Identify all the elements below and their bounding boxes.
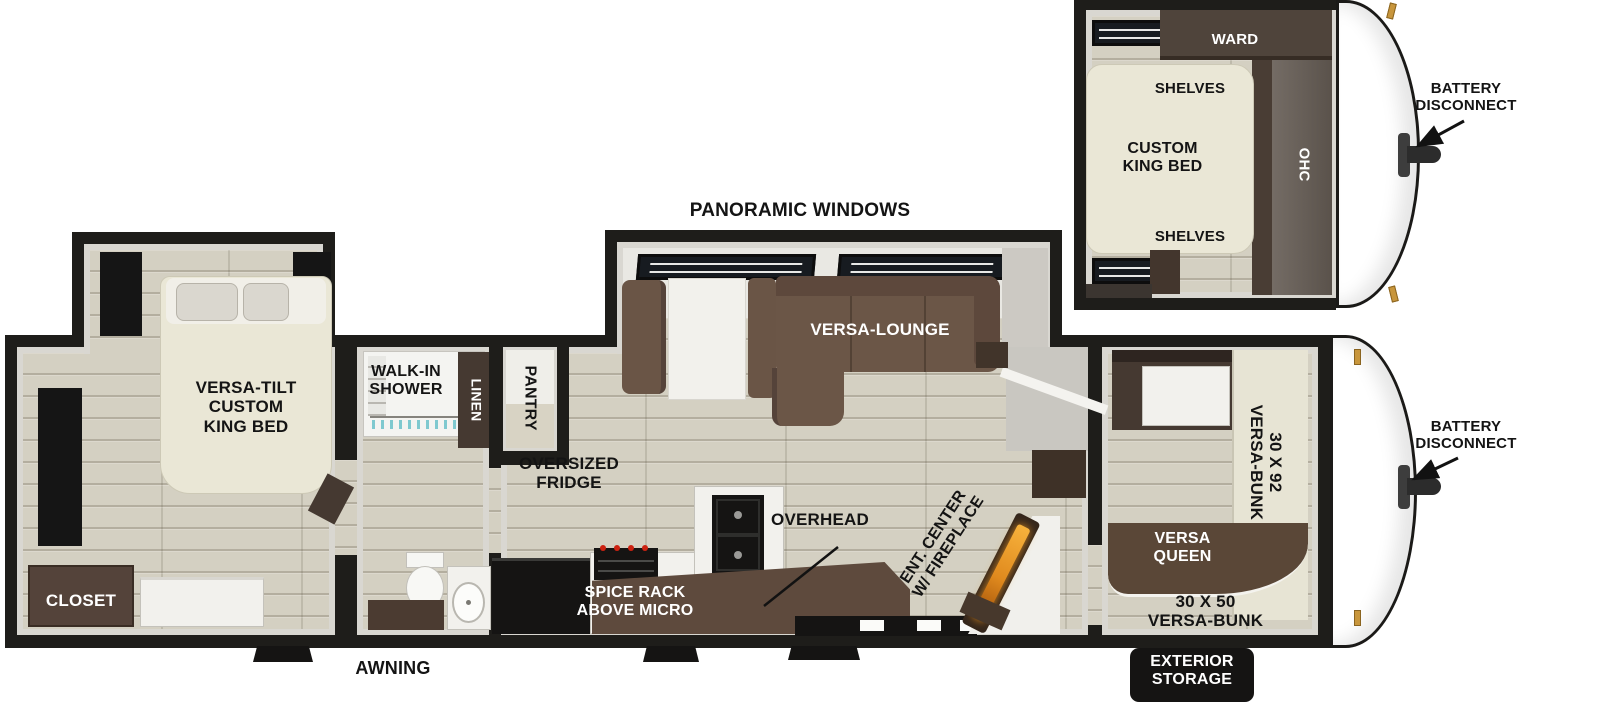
- bunk92-label: 30 X 92 VERSA-BUNK: [1247, 404, 1286, 519]
- battery-hitch-icon: [1407, 478, 1441, 495]
- sink-drain: [466, 600, 471, 605]
- linen-label: LINEN: [467, 378, 483, 421]
- ward-label: WARD: [1190, 31, 1280, 48]
- versa-tilt-king-label: VERSA-TILT CUSTOM KING BED: [168, 378, 324, 436]
- awning-label: AWNING: [338, 658, 448, 679]
- bunk92-label-wrap: 30 X 92 VERSA-BUNK: [1171, 436, 1361, 488]
- bunk-panel: [1142, 366, 1230, 426]
- hinge-icon: [1354, 349, 1361, 365]
- stabilizer-foot: [253, 646, 313, 662]
- oversized-fridge-label: OVERSIZED FRIDGE: [498, 454, 640, 493]
- custom-king-label: CUSTOM KING BED: [1100, 140, 1225, 176]
- closet-label: CLOSET: [30, 591, 132, 610]
- tv-cabinet: [1032, 450, 1086, 498]
- dresser: [140, 577, 264, 627]
- spice-rack-label: SPICE RACK ABOVE MICRO: [540, 584, 730, 620]
- sofa-chaise: [772, 368, 844, 426]
- lounge-chair: [622, 280, 666, 394]
- ohc-label-wrap: OHC: [1273, 134, 1335, 196]
- stabilizer-foot: [788, 646, 860, 660]
- slide-end-wall: [1002, 248, 1048, 348]
- island-cabinet: [712, 495, 764, 575]
- lounge-table: [668, 278, 746, 400]
- hinge-icon: [1354, 610, 1361, 626]
- battery-arrow-front: [1418, 121, 1464, 146]
- pantry-label-wrap: PANTRY: [482, 350, 578, 446]
- versa-queen-label: VERSA QUEEN: [1135, 530, 1230, 566]
- pantry-label: PANTRY: [521, 365, 539, 430]
- pillow: [176, 283, 238, 321]
- inset-corner-cabinet: [1150, 250, 1180, 294]
- versa-lounge-label: VERSA-LOUNGE: [790, 320, 970, 339]
- battery-hitch-icon: [1407, 146, 1441, 163]
- window-icon: [38, 388, 82, 546]
- battery-disconnect-front-label: BATTERY DISCONNECT: [1400, 80, 1532, 114]
- battery-arrow-main: [1414, 458, 1458, 479]
- shelves-top-label: SHELVES: [1130, 80, 1250, 97]
- hinge-icon: [1388, 285, 1399, 302]
- window-icon: [100, 252, 142, 336]
- inset-floor-shadow: [1086, 284, 1152, 298]
- entry-steps: [795, 616, 977, 636]
- exterior-storage-label: EXTERIOR STORAGE: [1132, 653, 1252, 689]
- ent-center-label-wrap: ENT. CENTER W/ FIREPLACE: [862, 520, 1022, 564]
- bunk50-label: 30 X 50 VERSA-BUNK: [1118, 592, 1293, 631]
- floorplan-canvas: VERSA-TILT CUSTOM KING BED CLOSET WALK-I…: [0, 0, 1600, 705]
- hinge-icon: [1386, 2, 1397, 19]
- panoramic-windows-label: PANORAMIC WINDOWS: [655, 200, 945, 222]
- stabilizer-foot: [643, 646, 699, 662]
- doorway: [1088, 545, 1102, 625]
- ohc-cabinet-edge: [1252, 55, 1272, 295]
- bath-cabinet: [368, 600, 444, 630]
- pillow: [243, 283, 289, 321]
- ohc-label: OHC: [1295, 148, 1312, 182]
- sofa-side-cabinet: [976, 342, 1008, 368]
- stove-cooktop: [594, 548, 658, 580]
- battery-disconnect-main-label: BATTERY DISCONNECT: [1400, 418, 1532, 452]
- shelves-bottom-label: SHELVES: [1130, 228, 1250, 245]
